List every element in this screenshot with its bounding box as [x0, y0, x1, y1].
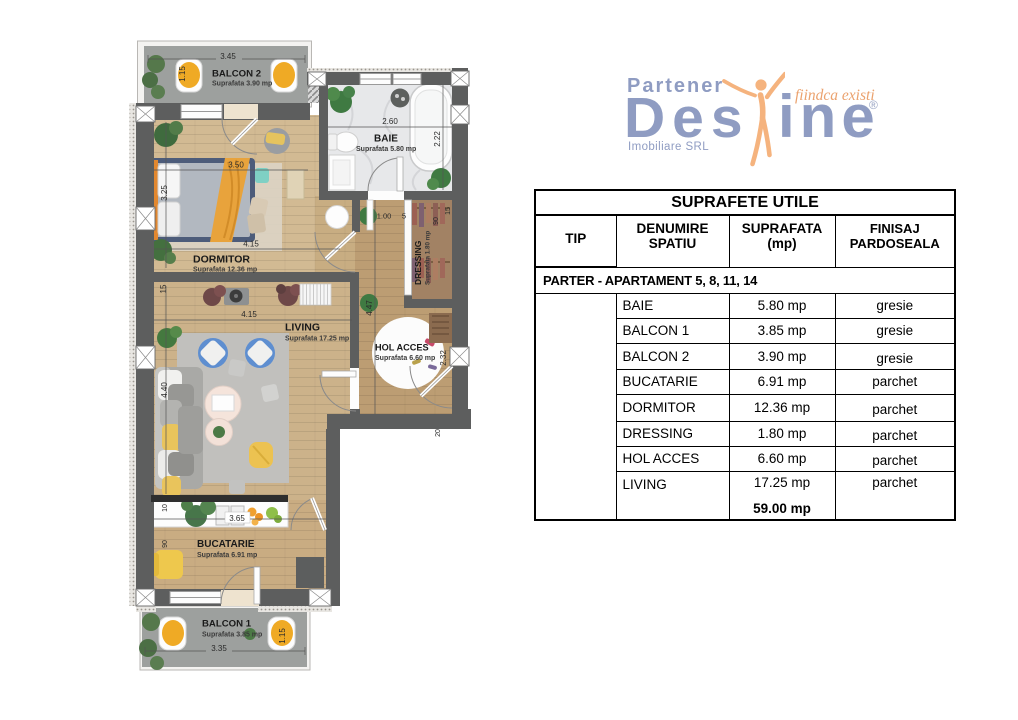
svg-text:Suprafata 3.90 mp: Suprafata 3.90 mp — [212, 81, 272, 88]
svg-text:4.40: 4.40 — [160, 382, 169, 398]
svg-text:1.15: 1.15 — [278, 628, 287, 644]
svg-text:4.47: 4.47 — [365, 300, 374, 316]
svg-text:Suprafata 6.60 mp: Suprafata 6.60 mp — [375, 355, 435, 362]
svg-text:3.50: 3.50 — [228, 161, 244, 170]
svg-text:3.45: 3.45 — [220, 52, 236, 61]
svg-text:1.00: 1.00 — [377, 212, 392, 221]
svg-text:Suprafata 12.36 mp: Suprafata 12.36 mp — [193, 267, 257, 274]
svg-text:BAIE: BAIE — [374, 134, 398, 145]
svg-text:BALCON 1: BALCON 1 — [202, 619, 252, 630]
svg-text:3.65: 3.65 — [229, 514, 245, 523]
svg-text:DRESSING: DRESSING — [413, 240, 423, 285]
svg-text:20: 20 — [435, 429, 442, 437]
svg-text:10: 10 — [162, 504, 169, 512]
svg-text:DORMITOR: DORMITOR — [193, 254, 250, 266]
svg-text:90: 90 — [162, 540, 169, 548]
svg-text:5: 5 — [402, 212, 406, 221]
svg-text:Suprafata 17.25 mp: Suprafata 17.25 mp — [285, 336, 349, 343]
svg-text:3.35: 3.35 — [211, 644, 227, 653]
svg-text:90: 90 — [433, 217, 440, 225]
svg-text:2.22: 2.22 — [433, 131, 442, 147]
svg-text:HOL ACCES: HOL ACCES — [375, 343, 429, 353]
svg-text:2.32: 2.32 — [439, 350, 448, 366]
svg-text:BUCATARIE: BUCATARIE — [197, 539, 255, 550]
svg-text:Suprafata 3.85 mp: Suprafata 3.85 mp — [202, 632, 262, 639]
svg-text:BALCON 2: BALCON 2 — [212, 69, 261, 80]
svg-text:LIVING: LIVING — [285, 322, 320, 334]
svg-text:15: 15 — [445, 207, 452, 215]
svg-text:4.15: 4.15 — [243, 240, 259, 249]
svg-text:15: 15 — [159, 284, 168, 293]
svg-text:Suprafata 6.91 mp: Suprafata 6.91 mp — [197, 552, 257, 559]
svg-text:3.25: 3.25 — [160, 185, 169, 201]
svg-text:4.15: 4.15 — [241, 310, 257, 319]
svg-text:Suprafata 1.80 mp: Suprafata 1.80 mp — [425, 231, 432, 285]
svg-text:1.15: 1.15 — [178, 66, 187, 82]
svg-text:2.60: 2.60 — [382, 117, 398, 126]
svg-text:Suprafata 5.80 mp: Suprafata 5.80 mp — [356, 146, 416, 153]
